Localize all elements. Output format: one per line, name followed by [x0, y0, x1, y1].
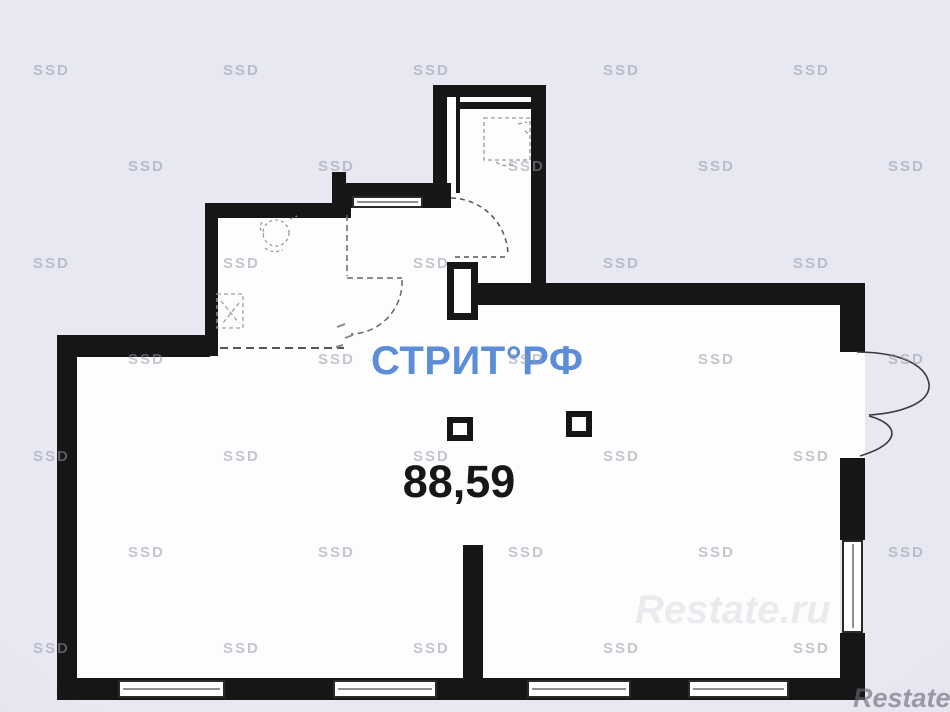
- window-pane: [123, 688, 220, 690]
- window-kitchen: [352, 196, 423, 208]
- window-pane: [532, 688, 626, 690]
- watermark-tile: SSD: [888, 544, 925, 561]
- window-bottom-1: [118, 680, 225, 698]
- watermark-tile: SSD: [33, 62, 70, 79]
- wall-right-mid: [840, 458, 865, 540]
- wall-kitchen-left: [205, 203, 218, 356]
- watermark-tile: SSD: [128, 158, 165, 175]
- wall-top-room-right: [531, 85, 546, 285]
- area-label: 88,59: [391, 456, 527, 508]
- window-pane: [852, 544, 854, 628]
- watermark-tile: SSD: [603, 255, 640, 272]
- wall-interior-stub: [463, 545, 483, 680]
- floor-kitchen: [218, 218, 478, 357]
- floorplan-screenshot: СТРИТ°РФ 88,59 SSDSSDSSDSSDSSDSSDSSDSSDS…: [0, 0, 950, 712]
- wall-kitchen-top: [205, 203, 351, 218]
- window-bottom-4: [688, 680, 789, 698]
- floor-top-room-b: [478, 262, 531, 283]
- watermark-tile: SSD: [223, 62, 260, 79]
- watermark-tile: SSD: [603, 62, 640, 79]
- wall-main-top-left: [57, 335, 210, 357]
- duct-niche-line-horizontal: [459, 102, 531, 109]
- wall-long-right: [478, 283, 865, 305]
- floor-door-gap: [840, 350, 865, 458]
- window-pane: [338, 688, 432, 690]
- entrance-door-swing: [857, 352, 929, 456]
- column-right: [566, 411, 592, 437]
- wall-left: [57, 335, 77, 700]
- brand-logo: СТРИТ°РФ: [371, 339, 579, 384]
- window-right: [842, 540, 863, 633]
- wall-right-upper: [840, 283, 865, 352]
- watermark-tile: SSD: [33, 255, 70, 272]
- window-bottom-3: [527, 680, 631, 698]
- shaft-box: [447, 262, 478, 320]
- window-pane: [693, 688, 784, 690]
- watermark-corner: Restate.ru: [853, 683, 950, 712]
- watermark-tile: SSD: [793, 62, 830, 79]
- watermark-tile: SSD: [888, 351, 925, 368]
- window-pane: [357, 201, 418, 203]
- watermark-tile: SSD: [793, 255, 830, 272]
- wall-top-room-left: [433, 85, 447, 197]
- watermark-tile: SSD: [888, 158, 925, 175]
- wall-top-room-top: [433, 85, 546, 97]
- column-left: [447, 417, 473, 441]
- watermark-tile: SSD: [698, 158, 735, 175]
- watermark-tile: SSD: [413, 62, 450, 79]
- window-bottom-2: [333, 680, 437, 698]
- duct-niche-line-vertical: [456, 95, 460, 193]
- watermark-faint: Restate.ru: [635, 588, 831, 633]
